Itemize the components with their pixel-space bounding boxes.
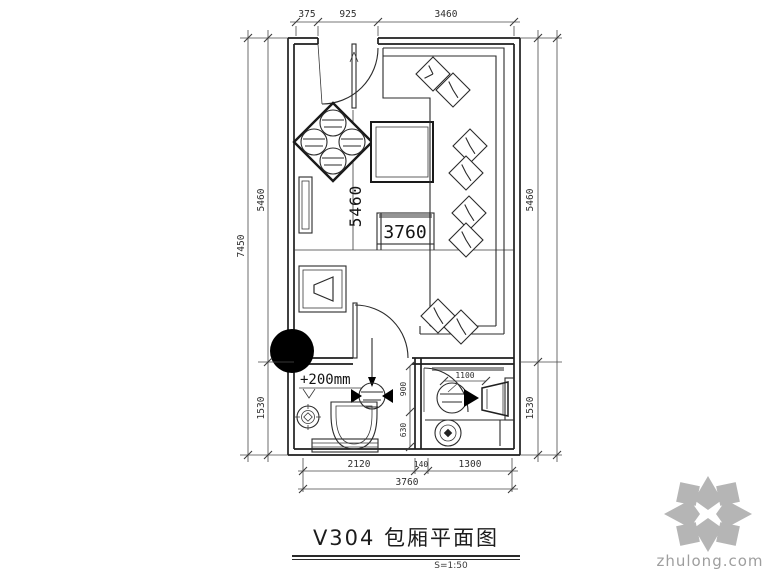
- zhulong-logo-icon: [650, 468, 770, 563]
- column: [270, 329, 314, 373]
- title-block: V304 包厢平面图 S=1:50: [292, 522, 520, 571]
- floor-plan-canvas: 3760 +200mm: [0, 0, 780, 585]
- dimension-top: 375 925 3460: [290, 9, 520, 36]
- dim-top-2: 925: [339, 9, 356, 20]
- dim-right-upper: 5460: [525, 188, 536, 211]
- room-depth-label: 5460: [346, 185, 365, 228]
- wall-console: [299, 177, 312, 233]
- dim-bottom-2: 140: [414, 460, 429, 469]
- dim-bath-lower: 630: [399, 423, 408, 438]
- cushion: [453, 129, 487, 163]
- dim-bottom-1: 2120: [348, 459, 371, 470]
- cushions: [416, 57, 487, 344]
- dim-bath-upper: 900: [399, 382, 408, 397]
- title-underline-thick: [292, 555, 520, 557]
- speaker-icon: [314, 277, 333, 301]
- floor-drain: [295, 404, 321, 430]
- tv-cabinet: [299, 266, 346, 312]
- dimension-bottom: 2120 140 1300 3760: [298, 458, 518, 493]
- table-width-label: 3760: [383, 222, 426, 243]
- shower-valve-2: [437, 383, 479, 413]
- riser-arrow: [368, 338, 376, 387]
- bathroom-left: +200mm: [295, 303, 408, 452]
- dimension-left: 7450 5460 1530: [236, 30, 294, 462]
- zhulong-brand-text: zhulong.com: [644, 552, 776, 570]
- title-underline-thin: [292, 559, 520, 560]
- drawing-scale: S=1:50: [292, 561, 520, 571]
- dimension-right: 5460 1530: [520, 30, 562, 462]
- dim-bottom-3: 1300: [459, 459, 482, 470]
- dim-top-1: 375: [298, 9, 315, 20]
- cushion: [449, 156, 483, 190]
- cushion: [452, 196, 486, 230]
- dim-left-upper: 5460: [256, 188, 267, 211]
- dim-right-lower: 1530: [525, 396, 536, 419]
- washbasin: [482, 378, 514, 420]
- cushion: [449, 223, 483, 257]
- drawing-title: V304 包厢平面图: [292, 522, 520, 552]
- dim-left-total: 7450: [236, 234, 247, 257]
- dim-bath-door: 1100: [455, 371, 474, 380]
- bath-door-swing: [353, 303, 408, 358]
- side-table-3760: 3760: [377, 213, 434, 250]
- drain-rings: [425, 420, 514, 446]
- center-table: [371, 122, 433, 182]
- dimension-bath: 900 630 1100: [399, 362, 490, 451]
- dim-left-lower: 1530: [256, 396, 267, 419]
- dim-top-3: 3460: [435, 9, 458, 20]
- dim-bottom-total: 3760: [396, 477, 419, 488]
- entry-door-swing: [318, 44, 378, 108]
- floor-level-label: +200mm: [300, 372, 351, 388]
- quad-seat-table: [294, 103, 372, 181]
